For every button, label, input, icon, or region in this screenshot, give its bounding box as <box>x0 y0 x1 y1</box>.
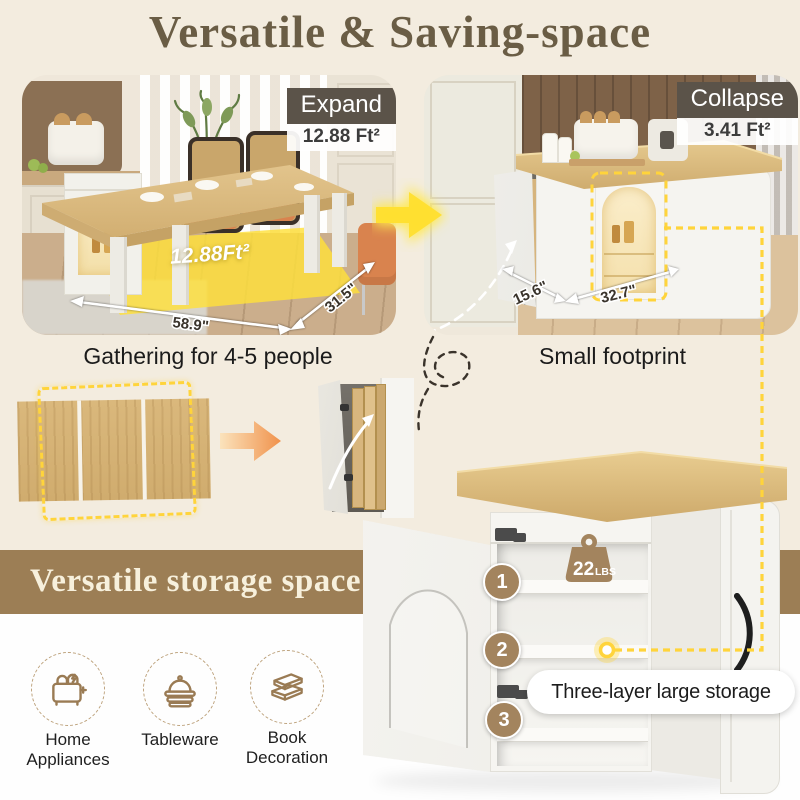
category-circle <box>250 650 324 724</box>
category-home-appliances: Home Appliances <box>8 652 128 770</box>
category-circle <box>31 652 105 726</box>
tabletop-highlight-outline <box>37 381 197 522</box>
svg-text:LBS: LBS <box>595 566 616 578</box>
expand-caption: Gathering for 4-5 people <box>58 343 358 370</box>
toaster-icon <box>45 666 91 712</box>
category-label: Book Decoration <box>227 728 347 768</box>
table-leg <box>110 237 127 313</box>
shelf-number-2: 2 <box>483 631 521 669</box>
hinge <box>513 533 526 542</box>
storage-banner-title: Versatile storage space <box>30 550 361 612</box>
category-circle <box>143 652 217 726</box>
jar <box>542 133 558 163</box>
collapse-photo: 15.6" 32.7" Collapse 3.41 Ft² <box>424 75 798 335</box>
storage-cabinet-image: 22 LBS 1 2 3 Three-layer large storage <box>345 430 800 800</box>
collapse-area: 3.41 Ft² <box>677 118 798 145</box>
category-label: Home Appliances <box>8 730 128 770</box>
product-infographic: Versatile & Saving-space <box>0 0 800 800</box>
shelf-number-3: 3 <box>485 701 523 739</box>
toaster <box>574 119 638 159</box>
table-leg <box>332 193 347 267</box>
expand-area: 12.88 Ft² <box>287 124 396 151</box>
category-book-decoration: Book Decoration <box>227 650 347 768</box>
towel-handle <box>727 590 763 676</box>
tableware-icon <box>157 666 203 712</box>
category-label: Tableware <box>120 730 240 750</box>
svg-text:22: 22 <box>573 559 594 580</box>
books-icon <box>264 664 310 710</box>
swirl-dashes <box>418 337 469 431</box>
orange-arrow-icon <box>220 420 282 462</box>
collapse-caption: Small footprint <box>470 343 755 370</box>
storage-callout: Three-layer large storage <box>527 670 795 714</box>
expand-photo: 12.88Ft² 58.9" 31.5" Expand 12.88 Ft² <box>22 75 396 335</box>
expand-tag: Expand <box>287 88 396 124</box>
expand-tag-stack: Expand 12.88 Ft² <box>287 88 396 151</box>
shelf-number-1: 1 <box>483 563 521 601</box>
collapse-tag-stack: Collapse 3.41 Ft² <box>677 82 798 145</box>
table-leg <box>304 195 320 273</box>
category-tableware: Tableware <box>120 652 240 750</box>
collapse-tag: Collapse <box>677 82 798 118</box>
glow-arrow-icon <box>372 178 450 252</box>
page-title: Versatile & Saving-space <box>0 6 800 58</box>
weight-icon: 22 LBS <box>560 533 618 587</box>
